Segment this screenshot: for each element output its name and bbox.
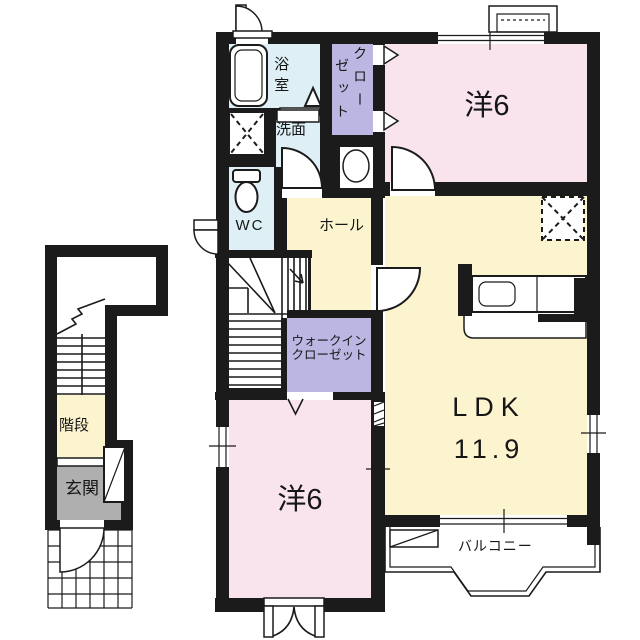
label-hall: ホール (319, 217, 364, 234)
door-entrance (60, 528, 104, 572)
label-wic-line1: ウォークイン (289, 334, 369, 348)
floor-plan: 浴室 クロー ゼット 洗面 WC ホール 洋6 LDK 11.9 ウォークイン … (0, 0, 640, 640)
label-balcony: バルコニー (458, 538, 533, 554)
label-walk-in-closet: ウォークイン クローゼット (289, 334, 369, 363)
door-unit-entrance (194, 220, 218, 254)
door-north-service (233, 5, 272, 38)
label-ldk: LDK (428, 392, 550, 423)
label-closet-col1: クロー (352, 46, 368, 115)
label-wic-line2: クローゼット (289, 348, 369, 362)
room-ldk (385, 196, 587, 515)
label-ldk-area: 11.9 (428, 434, 550, 465)
label-bathroom: 浴室 (272, 56, 289, 98)
room-staircase-nook (105, 442, 125, 463)
label-western-bottom: 洋6 (252, 484, 348, 517)
label-entrance: 玄関 (65, 479, 99, 499)
label-closet-col2: ゼット (334, 58, 350, 127)
room-wc (229, 167, 274, 250)
label-washroom: 洗面 (276, 121, 306, 138)
porch-tiles (48, 530, 132, 608)
label-wc: WC (227, 217, 273, 234)
room-utility (340, 147, 373, 188)
label-staircase: 階段 (59, 417, 89, 434)
ac-outdoor-unit (489, 6, 557, 32)
label-western-top: 洋6 (437, 90, 537, 123)
stairs-external (57, 299, 105, 395)
double-door-south (264, 598, 324, 637)
room-hall-lower (311, 250, 371, 318)
